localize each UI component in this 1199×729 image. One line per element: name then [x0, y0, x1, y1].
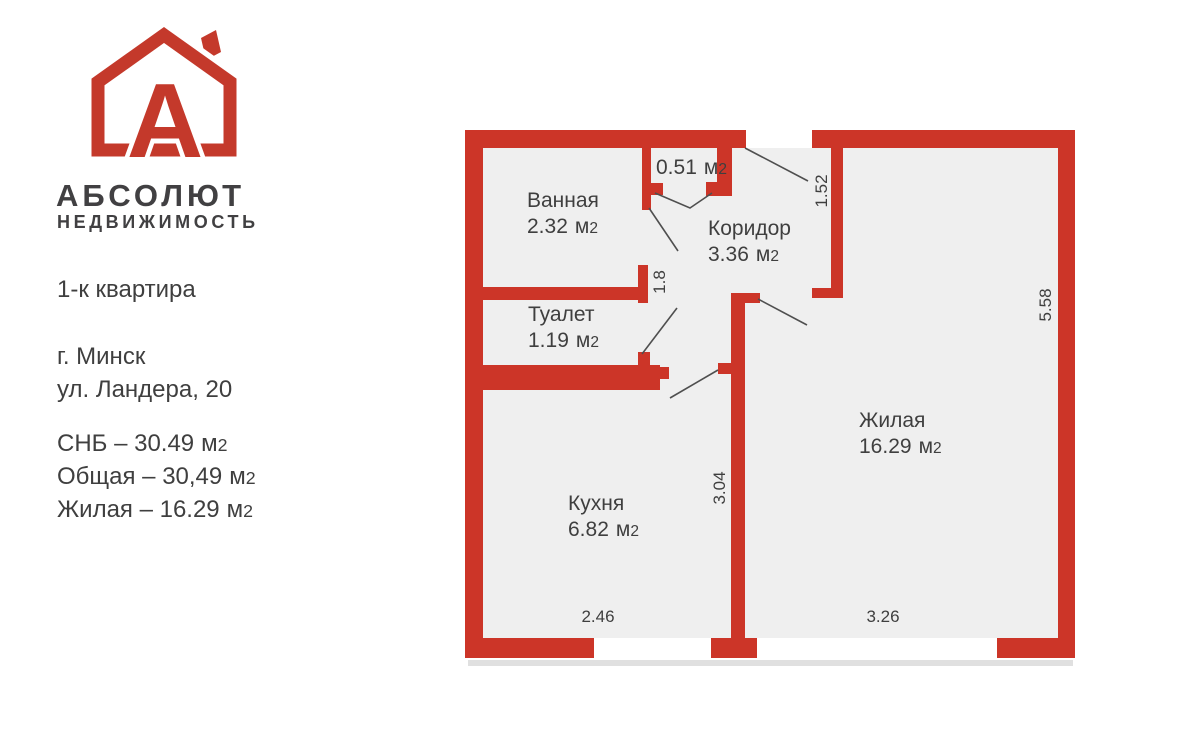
apartment-type: 1-к квартира	[57, 276, 196, 304]
wall-right	[1058, 130, 1075, 658]
wall-top-right	[812, 130, 1075, 148]
room-area: 16.29м2	[859, 434, 942, 462]
area-line-total: Общая – 30,49м2	[57, 463, 256, 491]
address-city: г. Минск	[57, 343, 145, 371]
room-name: Жилая	[859, 408, 942, 434]
wall-bottom-middle	[711, 638, 757, 658]
room-area: 6.82м2	[568, 517, 639, 545]
area-line-text: СНБ – 30.49	[57, 430, 194, 457]
wall-toilet-nub	[660, 367, 669, 379]
wall-divider-end-cap	[638, 265, 648, 303]
room-label-corridor: Коридор 3.36м2	[708, 216, 791, 270]
closet-jamb-left	[651, 183, 663, 195]
brand-title: АБСОЛЮТ	[56, 178, 245, 214]
room-area: 1.19м2	[528, 328, 599, 356]
wall-kitchen-living-divider	[731, 293, 745, 638]
wall-shadow	[468, 660, 1073, 666]
dim-bath-1-8: 1.8	[650, 252, 670, 312]
logo-letter: А	[127, 62, 204, 172]
dim-living-3-26: 3.26	[853, 607, 913, 627]
area-line-snb: СНБ – 30.49м2	[57, 430, 228, 458]
unit-label: м2	[227, 496, 253, 523]
room-label-toilet: Туалет 1.19м2	[528, 302, 599, 356]
floor-plan: Ванная 2.32м2 Туалет 1.19м2 Коридор 3.36…	[465, 130, 1075, 658]
kitchen-window	[594, 638, 711, 658]
area-line-text: Жилая – 16.29	[57, 496, 220, 523]
address-street: ул. Ландера, 20	[57, 376, 232, 404]
dim-living-5-58: 5.58	[1036, 275, 1056, 335]
dim-hall-1-52: 1.52	[812, 161, 832, 221]
room-name: Туалет	[528, 302, 599, 328]
closet-wall-left	[642, 148, 651, 210]
room-area: 3.36м2	[708, 242, 791, 270]
wall-bottom-right	[997, 638, 1075, 658]
wall-corridor-stub	[731, 293, 760, 303]
area-line-text: Общая – 30,49	[57, 463, 222, 490]
area-line-living: Жилая – 16.29м2	[57, 496, 253, 524]
unit-label: м2	[201, 430, 227, 457]
wall-hallway-stub	[812, 288, 843, 298]
room-area: 2.32м2	[527, 214, 599, 242]
living-room-window	[757, 638, 997, 658]
brand-logo: А	[85, 12, 250, 172]
wall-top-left	[465, 130, 746, 148]
room-area: 0.51м2	[656, 155, 727, 183]
room-label-living: Жилая 16.29м2	[859, 408, 942, 462]
wall-left	[465, 130, 483, 658]
wall-bathroom-toilet-divider	[483, 287, 642, 300]
brand-subtitle: НЕДВИЖИМОСТЬ	[57, 212, 259, 233]
closet-jamb-right	[706, 182, 717, 196]
wall-toilet-bottom	[483, 365, 660, 390]
kitchen-door-jamb	[718, 363, 731, 374]
room-name: Коридор	[708, 216, 791, 242]
unit-label: м2	[229, 463, 255, 490]
room-label-bathroom: Ванная 2.32м2	[527, 188, 599, 242]
room-name: Ванная	[527, 188, 599, 214]
wall-hallway	[831, 148, 843, 298]
wall-bottom-left	[465, 638, 594, 658]
room-name: Кухня	[568, 491, 639, 517]
room-label-kitchen: Кухня 6.82м2	[568, 491, 639, 545]
page: { "colors": { "brand_red": "#c4392b", "w…	[0, 0, 1199, 729]
toilet-door-jamb	[638, 352, 650, 365]
room-label-closet: 0.51м2	[656, 155, 727, 183]
dim-kitchen-3-04: 3.04	[710, 458, 730, 518]
dim-kitchen-2-46: 2.46	[568, 607, 628, 627]
